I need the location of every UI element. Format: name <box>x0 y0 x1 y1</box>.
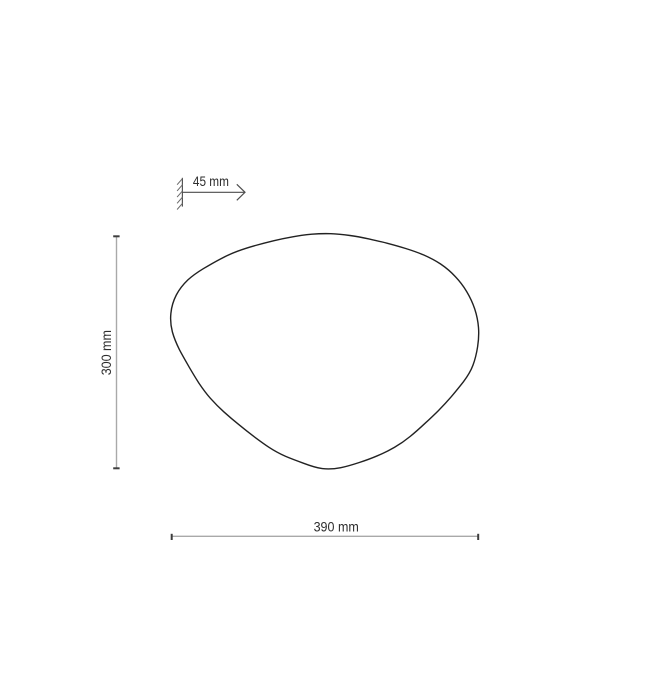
svg-text:45 mm: 45 mm <box>193 173 229 189</box>
svg-text:300 mm: 300 mm <box>98 330 114 375</box>
svg-text:390 mm: 390 mm <box>314 519 359 535</box>
